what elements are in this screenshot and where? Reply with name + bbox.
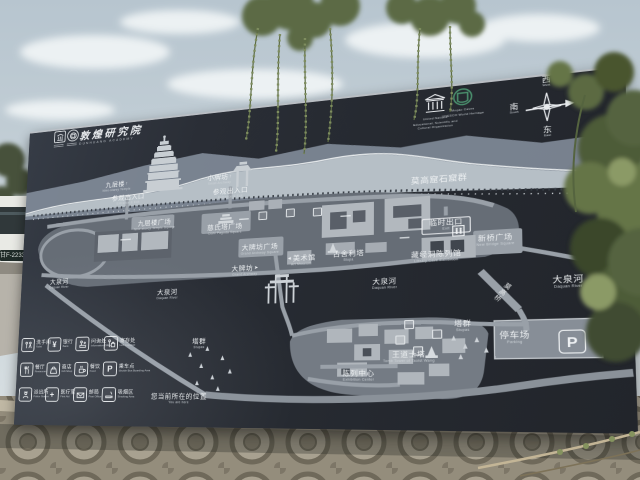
information-icon [75,337,89,352]
bank-icon: ¥ [47,337,61,351]
label-library-cave: 藏经洞陈列馆Library Cave Exhibition [411,250,461,264]
compass-north: 北North [577,92,586,104]
gift-shop-icon [46,362,60,376]
toilet-icon [21,338,35,352]
facility-icon [432,329,442,338]
photo-of-map-sign: 敦煌研究院 DUNHUANG ACADEMY United Nations Ed… [0,0,640,480]
left-luggage-icon [104,336,119,351]
legend-item-gift-shop: 商店Gift Shop [46,362,72,377]
label-temp-exit: 临时出口Exit [421,216,470,235]
facility-icon [413,346,423,355]
label-parking: 停车场Parking [499,331,530,345]
label-art-museum: ◄美术馆 Art Museum [287,255,316,268]
legend-item-bank: ¥ 银行Bank [47,337,73,352]
label-ancient-stupa: 古舍利塔Stupa [333,250,364,263]
label-small-archway: 小牌坊↑ Small Archway [207,174,232,187]
legend-item-left-luggage: 寄存处Left Luggage [104,336,136,351]
legend-item-restaurant: 餐厅Restaurant [20,362,48,376]
label-exhibition-center: 陈列中心Exhibition Center [342,371,374,383]
food-icon [74,362,88,377]
police-icon [18,387,32,401]
facility-icon [404,320,414,329]
facility-icon [258,211,267,220]
unesco-mini-logo [54,130,66,143]
legend-item-smoking: 吸烟区Smoking Area [101,387,134,402]
world-heritage-logo [451,86,473,108]
compass-south: 南South [509,102,518,113]
restaurant-icon [20,363,34,377]
label-stupa-group-2: 塔群Stupas [454,321,471,333]
label-daquan-river-1: 大泉河Daquan River [49,279,69,290]
facility-icon [313,207,322,216]
facility-icon [286,208,295,217]
shuttle-boarding-icon: P [103,361,118,376]
compass-star [511,83,583,130]
legend-item-shuttle-boarding: P 乘车点Shuttle Bus Boarding Area [103,361,151,376]
legend-item-food: 餐饮Food [74,362,100,377]
post-office-icon [73,387,87,402]
label-new-bridge-square: 新桥广场New Bridge Square [476,234,514,248]
legend-item-first-aid: + 医疗室First Aid [45,387,76,402]
first-aid-icon: + [45,387,59,401]
parking-p-icon: P [558,329,586,353]
compass-west: 西West [542,75,551,86]
facility-icon [395,335,405,344]
label-daquan-river-3: 大泉河Daquan River [372,278,397,291]
label-daquan-river-4: 大泉河Daquan River [552,275,584,290]
label-stupa-group-1: 塔群Stupas [192,339,206,350]
label-daquan-river-2: 大泉河Daquan River [157,289,178,301]
label-grand-archway: 大牌坊➤ Grand Archway [231,265,258,277]
label-archway-square: 大牌坊广场Grand Archway Square [241,243,279,256]
label-wang-tower: 王道士塔Tomb Tower of Taoist Wang [383,351,435,364]
compass-east: 东East [543,125,552,136]
smoking-icon [101,387,116,402]
legend-item-post-office: 邮局Post Office [73,387,102,402]
label-you-are-here: 您当前所在的位置You are here [151,394,207,405]
label-cishi-square: 慈氏塔广场Cishi Pagoda Square [207,223,243,236]
